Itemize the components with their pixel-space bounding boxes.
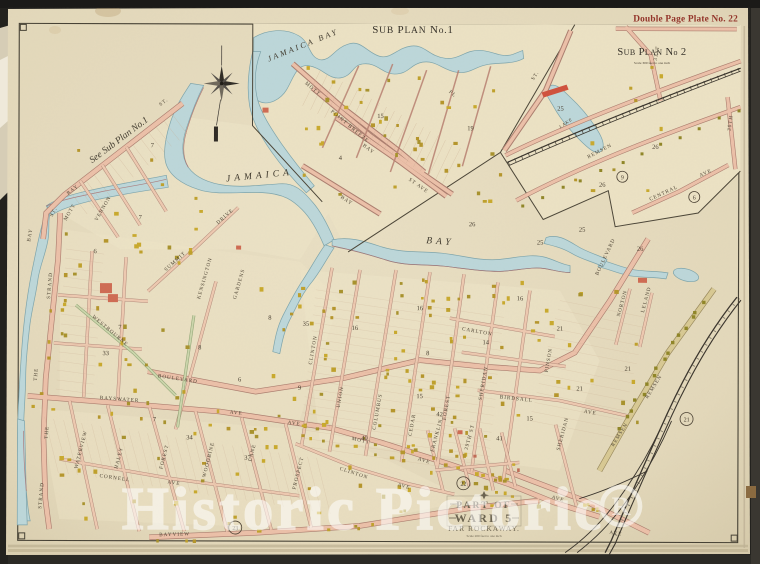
svg-text:SUB PLAN No 2: SUB PLAN No 2	[617, 47, 686, 58]
svg-text:Double Page Plate No. 22: Double Page Plate No. 22	[633, 15, 738, 25]
svg-text:Historic Pictoric: Historic Pictoric	[122, 476, 605, 542]
svg-text:Scale 300 feet to one inch: Scale 300 feet to one inch	[634, 61, 671, 65]
svg-text:R: R	[612, 492, 631, 521]
svg-text:SUB PLAN No.1: SUB PLAN No.1	[372, 24, 453, 36]
